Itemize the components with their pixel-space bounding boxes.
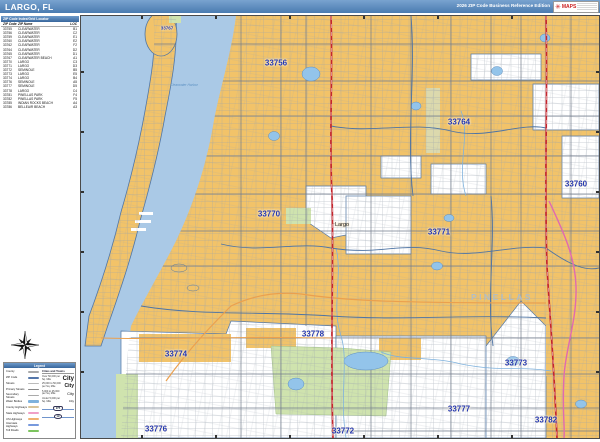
city-class: Under 5,000 per Sq. MileCity: [42, 397, 74, 404]
city-class: 25,000 to 50,000 per Sq. MileCity: [42, 382, 74, 389]
legend-city-classes: Cities and Towns Over 50,000 per Sq. Mil…: [42, 368, 75, 434]
interstate-shield-sample: 275: [42, 405, 74, 413]
city-class: 5,000 to 25,000 per Sq. MileCity: [42, 390, 74, 397]
zip-label: 33771: [428, 228, 450, 237]
zip-label: 33782: [535, 416, 557, 425]
page-title: LARGO, FL: [0, 2, 54, 12]
zip-label: 33777: [448, 405, 470, 414]
zip-label: 33760: [565, 180, 587, 189]
zip-label: 33756: [265, 59, 287, 68]
header-bar: LARGO, FL 2026 ZIP Code Business Referen…: [0, 0, 600, 13]
city-label-largo: ·Largo: [333, 222, 349, 228]
logo-burst-icon: ✳: [555, 4, 561, 11]
us-highway-shield-sample: 19: [42, 413, 74, 421]
legend-line-items: County ZIP Code Streets Primary Streets …: [4, 368, 42, 434]
publisher-logo: ✳ MAPS: [553, 1, 599, 13]
legend-item: Toll Roads: [6, 428, 42, 434]
zip-label: 33764: [448, 118, 470, 127]
map-legend: Legend County ZIP Code Streets Primary S…: [3, 362, 76, 439]
zip-label: 33770: [258, 210, 280, 219]
zip-index-row: 33786BELLEAIR BEACHA3: [1, 105, 79, 109]
compass-rose-icon: [8, 329, 42, 361]
zip-label: 33773: [505, 359, 527, 368]
left-margin-column: ZIP Code Index/Grid Locator ZIP Code ZIP…: [0, 13, 80, 442]
edition-label: 2026 ZIP Code Business Reference Edition: [457, 3, 550, 8]
cities-towns-title: Cities and Towns: [42, 369, 74, 374]
zip-index-table: ZIP Code Index/Grid Locator ZIP Code ZIP…: [1, 16, 79, 109]
map-page: LARGO, FL 2026 ZIP Code Business Referen…: [0, 0, 600, 442]
logo-brand-text: MAPS: [562, 4, 576, 10]
logo-fineprint-block: [577, 3, 597, 11]
zip-label: 33767: [161, 26, 174, 31]
county-label: PINELLAS: [471, 292, 533, 302]
city-class: Over 50,000 per Sq. MileCity: [42, 375, 74, 382]
water-label: Clearwater Harbor: [169, 84, 199, 88]
zip-label: 33772: [332, 427, 354, 436]
zip-label: 33774: [165, 350, 187, 359]
zip-label: 33778: [302, 330, 324, 339]
map-canvas: 33767 33756 33764 33760 33770 33771 3377…: [80, 15, 600, 439]
zip-label: 33776: [145, 425, 167, 434]
